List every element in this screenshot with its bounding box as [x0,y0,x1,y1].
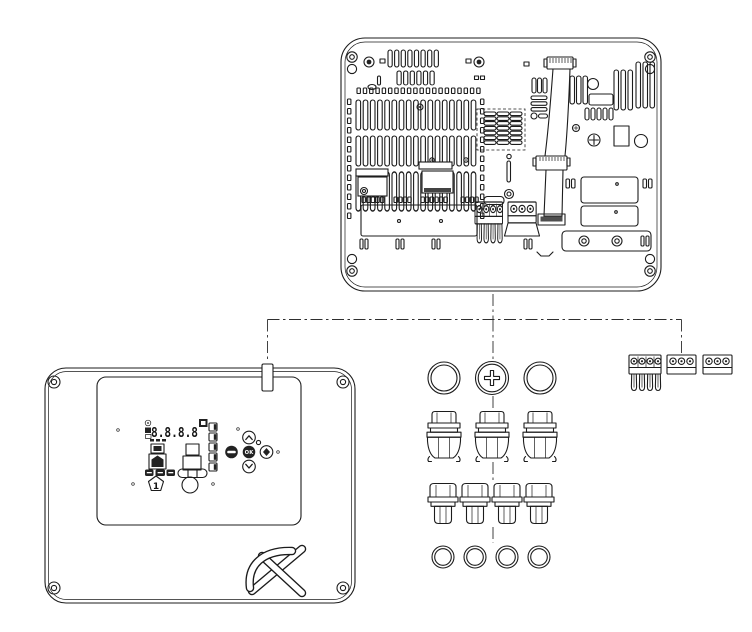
seven-segment-digits: 8.8.8.8 [151,426,198,441]
indicator-led [256,440,260,444]
svg-text:1: 1 [153,482,159,492]
vent-slots [348,50,655,219]
terminal-plug-3pole-b [703,355,732,374]
down-button [243,460,256,473]
terminal-plugs [629,355,732,391]
menu-bar-icon [227,451,236,454]
grundfos-logo [250,549,302,593]
chevron-down-icon [246,464,252,468]
blank-button-cutout [182,477,198,493]
svg-text:OK: OK [245,450,255,456]
ribbon-cable [533,57,576,225]
display-label: 8.8.8.8 [145,419,273,493]
case-bottom-slots [360,239,532,249]
front-cover: 8.8.8.8 [45,364,355,603]
exploded-view-diagram: 8.8.8.8 [0,0,752,632]
chevron-up-icon [246,436,252,440]
terminal-block-4pole [475,202,503,243]
terminal-plug-4pole [629,355,661,391]
relay-connector-boxes [356,162,478,203]
terminal-block-3pole [505,202,540,236]
up-button [243,431,256,444]
lock-nuts [432,546,550,568]
terminal-plug-3pole-a [667,355,696,374]
blanking-plugs [428,362,556,395]
large-cable-glands [427,412,557,462]
cross-slot-screw [485,371,500,386]
small-cable-glands [428,484,554,524]
keypad: OK [225,431,273,473]
priority-badge: 1 [149,476,164,492]
escape-glyph-icon [263,448,270,456]
assembly-centerlines [268,294,682,543]
front-cover-outline [45,368,355,603]
diagram-canvas: 8.8.8.8 [0,0,752,632]
tank-pictogram [183,444,201,470]
cover-tab [262,364,273,391]
rear-housing [341,38,661,291]
pump-pit-pictogram [149,444,166,469]
menu-icon-column [209,423,217,471]
mode-indicator-pills [145,470,175,477]
